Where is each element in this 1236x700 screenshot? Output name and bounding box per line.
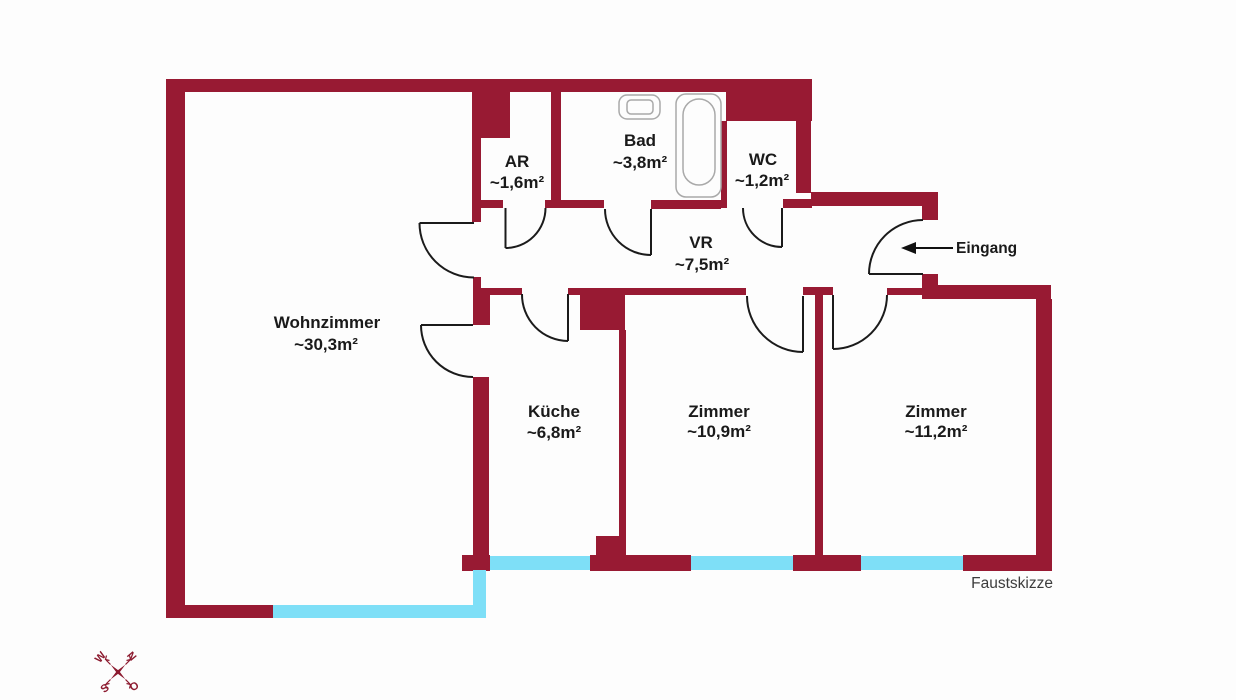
svg-text:~10,9m²: ~10,9m²	[687, 422, 751, 441]
svg-text:~30,3m²: ~30,3m²	[294, 335, 358, 354]
svg-text:Faustskizze: Faustskizze	[971, 575, 1053, 592]
svg-text:O: O	[128, 679, 142, 694]
svg-text:Zimmer: Zimmer	[688, 402, 750, 421]
svg-text:WC: WC	[749, 150, 777, 169]
svg-text:Zimmer: Zimmer	[905, 402, 967, 421]
svg-text:~1,2m²: ~1,2m²	[735, 171, 790, 190]
svg-text:~7,5m²: ~7,5m²	[675, 255, 730, 274]
svg-text:Eingang: Eingang	[956, 240, 1017, 257]
svg-text:Bad: Bad	[624, 131, 656, 150]
svg-text:~1,6m²: ~1,6m²	[490, 173, 545, 192]
svg-text:AR: AR	[505, 152, 530, 171]
svg-text:VR: VR	[689, 233, 713, 252]
svg-text:Küche: Küche	[528, 402, 580, 421]
svg-text:~6,8m²: ~6,8m²	[527, 423, 582, 442]
svg-text:~3,8m²: ~3,8m²	[613, 153, 668, 172]
svg-text:Wohnzimmer: Wohnzimmer	[274, 313, 381, 332]
svg-text:~11,2m²: ~11,2m²	[905, 422, 968, 441]
svg-text:N: N	[124, 650, 138, 664]
svg-text:W: W	[93, 649, 109, 665]
svg-text:S: S	[98, 682, 111, 696]
